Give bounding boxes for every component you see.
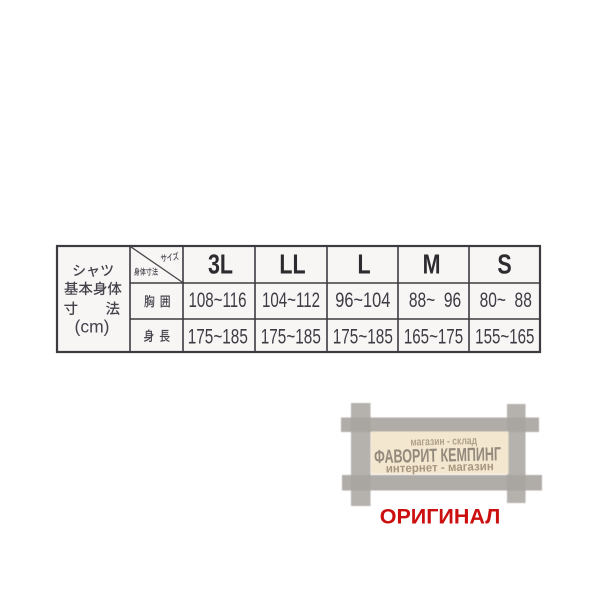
svg-text:175~185: 175~185 bbox=[333, 324, 393, 348]
svg-text:175~185: 175~185 bbox=[188, 324, 248, 348]
svg-text:S: S bbox=[497, 250, 511, 280]
svg-text:M: M bbox=[423, 250, 441, 280]
svg-text:L: L bbox=[357, 250, 370, 280]
svg-text:интернет - магазин: интернет - магазин bbox=[386, 460, 494, 476]
svg-text:80~ 88: 80~ 88 bbox=[480, 288, 532, 312]
svg-text:88~ 96: 88~ 96 bbox=[409, 288, 461, 312]
svg-text:108~116: 108~116 bbox=[188, 287, 246, 311]
svg-text:(cm): (cm) bbox=[75, 316, 110, 336]
svg-text:155~165: 155~165 bbox=[475, 324, 534, 348]
svg-text:96~104: 96~104 bbox=[335, 288, 390, 311]
svg-text:104~112: 104~112 bbox=[262, 287, 320, 311]
svg-text:LL: LL bbox=[279, 250, 305, 280]
svg-text:175~185: 175~185 bbox=[261, 324, 321, 348]
svg-text:165~175: 165~175 bbox=[404, 324, 463, 348]
svg-text:ОРИГИНАЛ: ОРИГИНАЛ bbox=[380, 505, 501, 529]
svg-text:3L: 3L bbox=[208, 250, 233, 280]
